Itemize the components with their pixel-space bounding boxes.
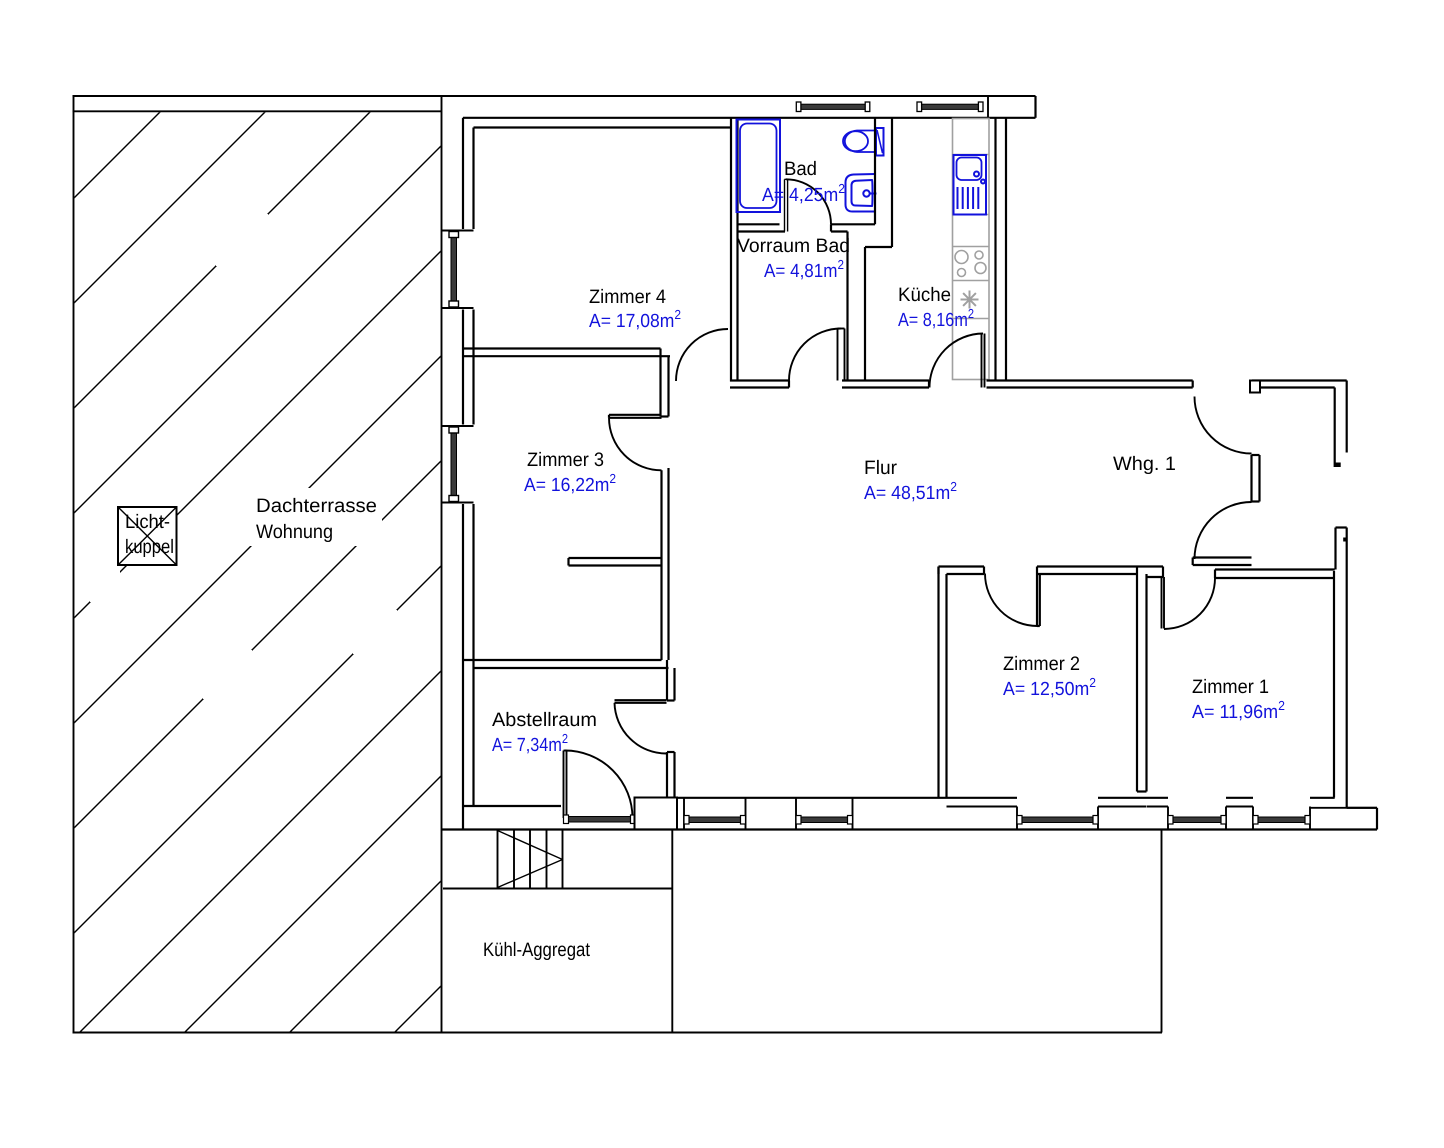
svg-text:A= 4,25m2: A= 4,25m2 (762, 181, 845, 206)
svg-text:Flur: Flur (864, 457, 897, 479)
svg-text:A= 16,22m2: A= 16,22m2 (524, 471, 616, 496)
svg-text:A= 48,51m2: A= 48,51m2 (864, 479, 957, 504)
svg-text:Zimmer 4: Zimmer 4 (589, 286, 666, 308)
svg-text:Küche: Küche (898, 284, 951, 306)
svg-text:Zimmer 3: Zimmer 3 (527, 449, 604, 471)
svg-text:Zimmer 2: Zimmer 2 (1003, 653, 1080, 675)
svg-text:Abstellraum: Abstellraum (492, 709, 597, 731)
svg-text:A= 8,16m2: A= 8,16m2 (898, 306, 974, 331)
svg-text:A= 7,34m2: A= 7,34m2 (492, 731, 568, 756)
svg-text:Whg. 1: Whg. 1 (1113, 453, 1176, 475)
svg-text:A= 11,96m2: A= 11,96m2 (1192, 698, 1285, 723)
svg-text:A= 17,08m2: A= 17,08m2 (589, 307, 681, 332)
svg-text:Vorraum Bad: Vorraum Bad (737, 235, 850, 257)
svg-text:A= 4,81m2: A= 4,81m2 (764, 257, 844, 282)
svg-text:Kühl-Aggregat: Kühl-Aggregat (483, 939, 590, 961)
svg-text:A= 12,50m2: A= 12,50m2 (1003, 675, 1096, 700)
svg-text:Licht-: Licht- (125, 511, 170, 533)
svg-text:Bad: Bad (784, 158, 817, 180)
svg-text:kuppel: kuppel (125, 536, 174, 558)
svg-text:Zimmer 1: Zimmer 1 (1192, 676, 1269, 698)
svg-text:Dachterrasse: Dachterrasse (256, 495, 377, 517)
svg-text:Wohnung: Wohnung (256, 521, 333, 543)
